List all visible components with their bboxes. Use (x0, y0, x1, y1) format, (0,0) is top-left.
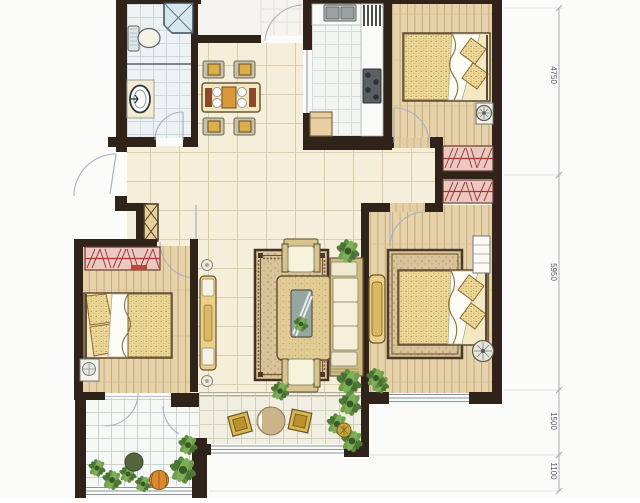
svg-text:5950: 5950 (549, 263, 558, 281)
svg-text:4750: 4750 (549, 66, 558, 84)
svg-text:1500: 1500 (549, 412, 558, 430)
svg-text:1100: 1100 (549, 462, 558, 480)
